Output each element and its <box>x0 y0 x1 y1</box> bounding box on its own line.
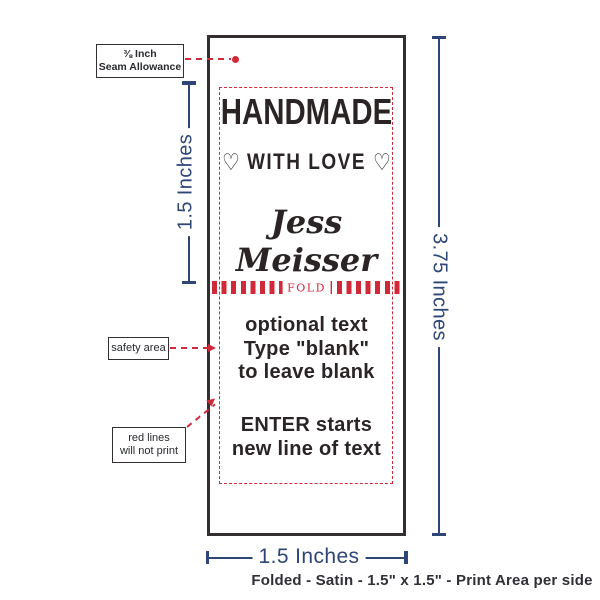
red-lines-line1: red lines <box>113 432 185 445</box>
optional-text-hint: optional text Type "blank" to leave blan… <box>210 314 403 385</box>
with-love-text: WITH LOVE <box>247 150 366 174</box>
dimension-label-left: 1.5 Inches <box>173 128 200 236</box>
design-line-with-love: ♡WITH LOVE♡ <box>210 148 403 177</box>
design-line-handmade: HANDMADE <box>212 93 401 134</box>
seam-allowance-line1: ⅜ Inch <box>97 48 183 61</box>
safety-area-pointer-line <box>170 347 208 349</box>
heart-left-icon: ♡ <box>222 150 240 175</box>
optional-text-line3: to leave blank <box>210 361 403 385</box>
label-outline: HANDMADE ♡WITH LOVE♡ Jess Meisser FOLD o… <box>207 35 406 536</box>
enter-hint: ENTER starts new line of text <box>210 414 403 461</box>
heart-right-icon: ♡ <box>373 150 391 175</box>
seam-allowance-line2: Seam Allowance <box>97 61 183 74</box>
optional-text-line2: Type "blank" <box>210 338 403 362</box>
dimension-cap-right-bottom <box>432 533 446 537</box>
dimension-cap-left-bottom <box>182 281 196 285</box>
dimension-cap-bottom-right <box>404 551 408 564</box>
fold-line: FOLD <box>212 281 401 294</box>
safety-area-callout: safety area <box>108 337 169 360</box>
dimension-label-right: 3.75 Inches <box>426 227 453 347</box>
label-size-diagram: HANDMADE ♡WITH LOVE♡ Jess Meisser FOLD o… <box>0 0 600 600</box>
personalized-name-text: Jess Meisser <box>210 203 403 279</box>
red-lines-line2: will not print <box>113 445 185 458</box>
seam-allowance-callout: ⅜ Inch Seam Allowance <box>96 44 184 78</box>
enter-hint-line2: new line of text <box>210 438 403 462</box>
seam-allowance-pointer-line <box>185 58 231 60</box>
fold-label: FOLD <box>282 280 331 295</box>
product-spec-caption: Folded - Satin - 1.5" x 1.5" - Print Are… <box>248 572 596 589</box>
dimension-cap-bottom-left <box>206 551 210 564</box>
dimension-cap-left-top <box>182 81 196 85</box>
red-lines-callout: red lines will not print <box>112 427 186 463</box>
safety-area-label: safety area <box>109 342 168 355</box>
dimension-label-bottom: 1.5 Inches <box>253 543 366 571</box>
optional-text-line1: optional text <box>210 314 403 338</box>
dimension-cap-right-top <box>432 36 446 40</box>
seam-allowance-pointer-dot <box>232 56 239 63</box>
safety-area-arrow-icon <box>208 344 216 352</box>
enter-hint-line1: ENTER starts <box>210 414 403 438</box>
